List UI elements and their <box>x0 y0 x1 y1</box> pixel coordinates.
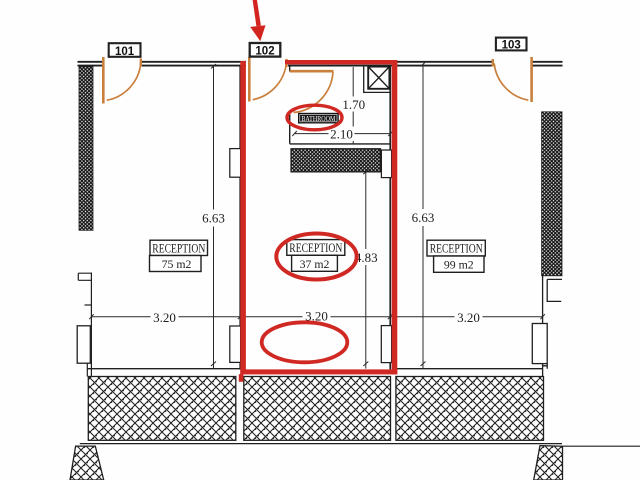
svg-text:RECEPTION: RECEPTION <box>430 242 483 256</box>
svg-text:6.63: 6.63 <box>412 210 435 225</box>
svg-text:3.20: 3.20 <box>153 310 176 325</box>
svg-text:37 m2: 37 m2 <box>300 257 330 271</box>
svg-text:103: 103 <box>502 40 521 52</box>
svg-text:RECEPTION: RECEPTION <box>289 241 342 255</box>
svg-text:2.10: 2.10 <box>330 127 353 142</box>
svg-text:3.20: 3.20 <box>457 310 480 325</box>
svg-text:102: 102 <box>255 46 274 58</box>
svg-text:75 m2: 75 m2 <box>162 257 192 271</box>
svg-text:101: 101 <box>115 46 135 58</box>
svg-text:1.70: 1.70 <box>342 97 365 112</box>
svg-text:RECEPTION: RECEPTION <box>152 241 205 255</box>
svg-text:6.63: 6.63 <box>202 211 225 226</box>
svg-text:99 m2: 99 m2 <box>444 258 474 272</box>
svg-text:BATHROOM: BATHROOM <box>301 115 336 123</box>
